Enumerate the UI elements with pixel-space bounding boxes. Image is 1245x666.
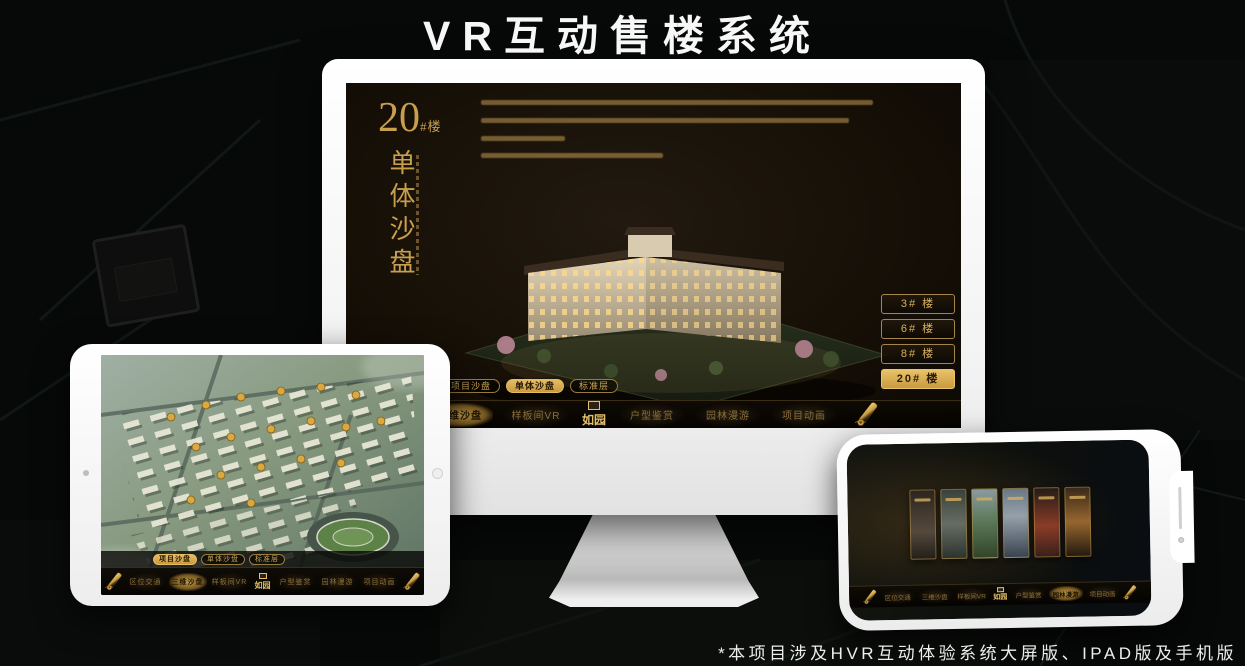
- scroll-ornament-icon[interactable]: [861, 588, 879, 606]
- nav-item-garden-roam[interactable]: 园林漫游: [1048, 586, 1082, 602]
- scroll-ornament-icon[interactable]: [103, 571, 125, 593]
- building-button-6[interactable]: 6# 楼: [881, 319, 955, 339]
- ruyuan-logo-text: 如园: [582, 411, 606, 428]
- building-number: 20: [378, 95, 420, 141]
- nav-item-floorplan[interactable]: 户型鉴赏: [619, 403, 685, 427]
- ruyuan-logo-text: 如园: [993, 592, 1007, 602]
- building-render-3d[interactable]: [406, 163, 906, 413]
- scene-thumbnail-garden[interactable]: [971, 488, 998, 558]
- thumbnail-caption-decoration: [976, 497, 993, 500]
- scroll-ornament-icon[interactable]: [401, 571, 423, 593]
- scene-thumbnail-building[interactable]: [1002, 488, 1029, 558]
- tablet-camera-icon: [83, 470, 89, 476]
- phone-speaker-icon: [1178, 487, 1182, 529]
- nav-item-location-traffic[interactable]: 区位交通: [881, 589, 915, 605]
- building-button-8[interactable]: 8# 楼: [881, 344, 955, 364]
- description-line: [481, 153, 663, 158]
- phone-camera-icon: [1178, 537, 1184, 543]
- nav-item-floorplan[interactable]: 户型鉴赏: [1011, 586, 1045, 602]
- subtab-project-sandbox[interactable]: 项目沙盘: [442, 379, 500, 393]
- scroll-ornament-icon[interactable]: [850, 400, 884, 429]
- thumbnail-caption-decoration: [945, 498, 962, 501]
- nav-item-project-animation[interactable]: 项目动画: [771, 403, 837, 427]
- ruyuan-logo: 如园: [255, 573, 271, 591]
- promo-canvas: 20#楼 单体沙盘: [0, 0, 1245, 666]
- nav-item-showroom-vr[interactable]: 样板间VR: [503, 403, 569, 427]
- subtab-standard-floor[interactable]: 标准层: [570, 379, 618, 393]
- nav-item-garden-roam[interactable]: 园林漫游: [319, 573, 357, 591]
- tablet-device: 项目沙盘 单体沙盘 标准层 区位交通 三维沙盘 样板间VR 如园 户型鉴赏 园林…: [70, 344, 450, 606]
- tablet-main-navbar: 区位交通 三维沙盘 样板间VR 如园 户型鉴赏 园林漫游 项目动画: [101, 567, 424, 595]
- tablet-home-button[interactable]: [432, 468, 443, 479]
- sandbox-subtabs: 项目沙盘 单体沙盘 标准层: [442, 379, 618, 393]
- scene-thumbnail-bookshelf[interactable]: [1064, 487, 1091, 557]
- ruyuan-seal-icon: [259, 573, 267, 579]
- tablet-screen: 项目沙盘 单体沙盘 标准层 区位交通 三维沙盘 样板间VR 如园 户型鉴赏 园林…: [101, 355, 424, 595]
- nav-item-garden-roam[interactable]: 园林漫游: [695, 403, 761, 427]
- thumbnail-caption-decoration: [1007, 497, 1024, 500]
- ruyuan-seal-icon: [588, 401, 600, 410]
- building-number-title: 20#楼: [378, 97, 442, 139]
- nav-item-project-animation[interactable]: 项目动画: [361, 573, 399, 591]
- ruyuan-logo: 如园: [582, 401, 606, 428]
- scroll-ornament-icon[interactable]: [1121, 583, 1139, 601]
- phone-screen: 区位交通 三维沙盘 样板间VR 如园 户型鉴赏 园林漫游 项目动画: [846, 440, 1151, 621]
- nav-item-project-animation[interactable]: 项目动画: [1085, 585, 1119, 601]
- nav-item-floorplan[interactable]: 户型鉴赏: [277, 573, 315, 591]
- tablet-subtab-single-sandbox[interactable]: 单体沙盘: [201, 554, 245, 565]
- footnote-text: *本项目涉及HVR互动体验系统大屏版、IPAD版及手机版: [718, 639, 1237, 664]
- tablet-subtab-standard-floor[interactable]: 标准层: [249, 554, 285, 565]
- building-button-20[interactable]: 20# 楼: [881, 369, 955, 389]
- scene-thumbnail-entrance[interactable]: [1033, 487, 1060, 557]
- page-title: VR互动售楼系统: [0, 2, 1245, 62]
- thumbnail-caption-decoration: [1038, 496, 1055, 499]
- nav-item-3d-sandbox[interactable]: 三维沙盘: [169, 573, 207, 591]
- scene-thumbnail-interior[interactable]: [909, 489, 936, 559]
- tablet-sandbox-subtabs: 项目沙盘 单体沙盘 标准层: [153, 554, 285, 565]
- description-line: [481, 100, 873, 105]
- thumbnail-caption-decoration: [914, 498, 931, 501]
- phone-notch: [1169, 471, 1195, 563]
- scene-thumbnail-garage[interactable]: [940, 489, 967, 559]
- building-number-suffix: #楼: [420, 119, 442, 134]
- nav-item-showroom-vr[interactable]: 样板间VR: [955, 587, 989, 603]
- nav-item-3d-sandbox[interactable]: 三维沙盘: [918, 588, 952, 604]
- phone-device: 区位交通 三维沙盘 样板间VR 如园 户型鉴赏 园林漫游 项目动画: [836, 429, 1183, 631]
- thumbnail-caption-decoration: [1069, 496, 1086, 499]
- description-line: [481, 118, 849, 123]
- description-line: [481, 136, 565, 141]
- nav-item-showroom-vr[interactable]: 样板间VR: [211, 573, 249, 591]
- subtab-single-sandbox[interactable]: 单体沙盘: [506, 379, 564, 393]
- building-button-3[interactable]: 3# 楼: [881, 294, 955, 314]
- ruyuan-logo-text: 如园: [255, 580, 271, 591]
- ruyuan-logo: 如园: [993, 587, 1007, 602]
- phone-main-navbar: 区位交通 三维沙盘 样板间VR 如园 户型鉴赏 园林漫游 项目动画: [849, 581, 1151, 608]
- nav-item-location-traffic[interactable]: 区位交通: [127, 573, 165, 591]
- tablet-subtab-project-sandbox[interactable]: 项目沙盘: [153, 554, 197, 565]
